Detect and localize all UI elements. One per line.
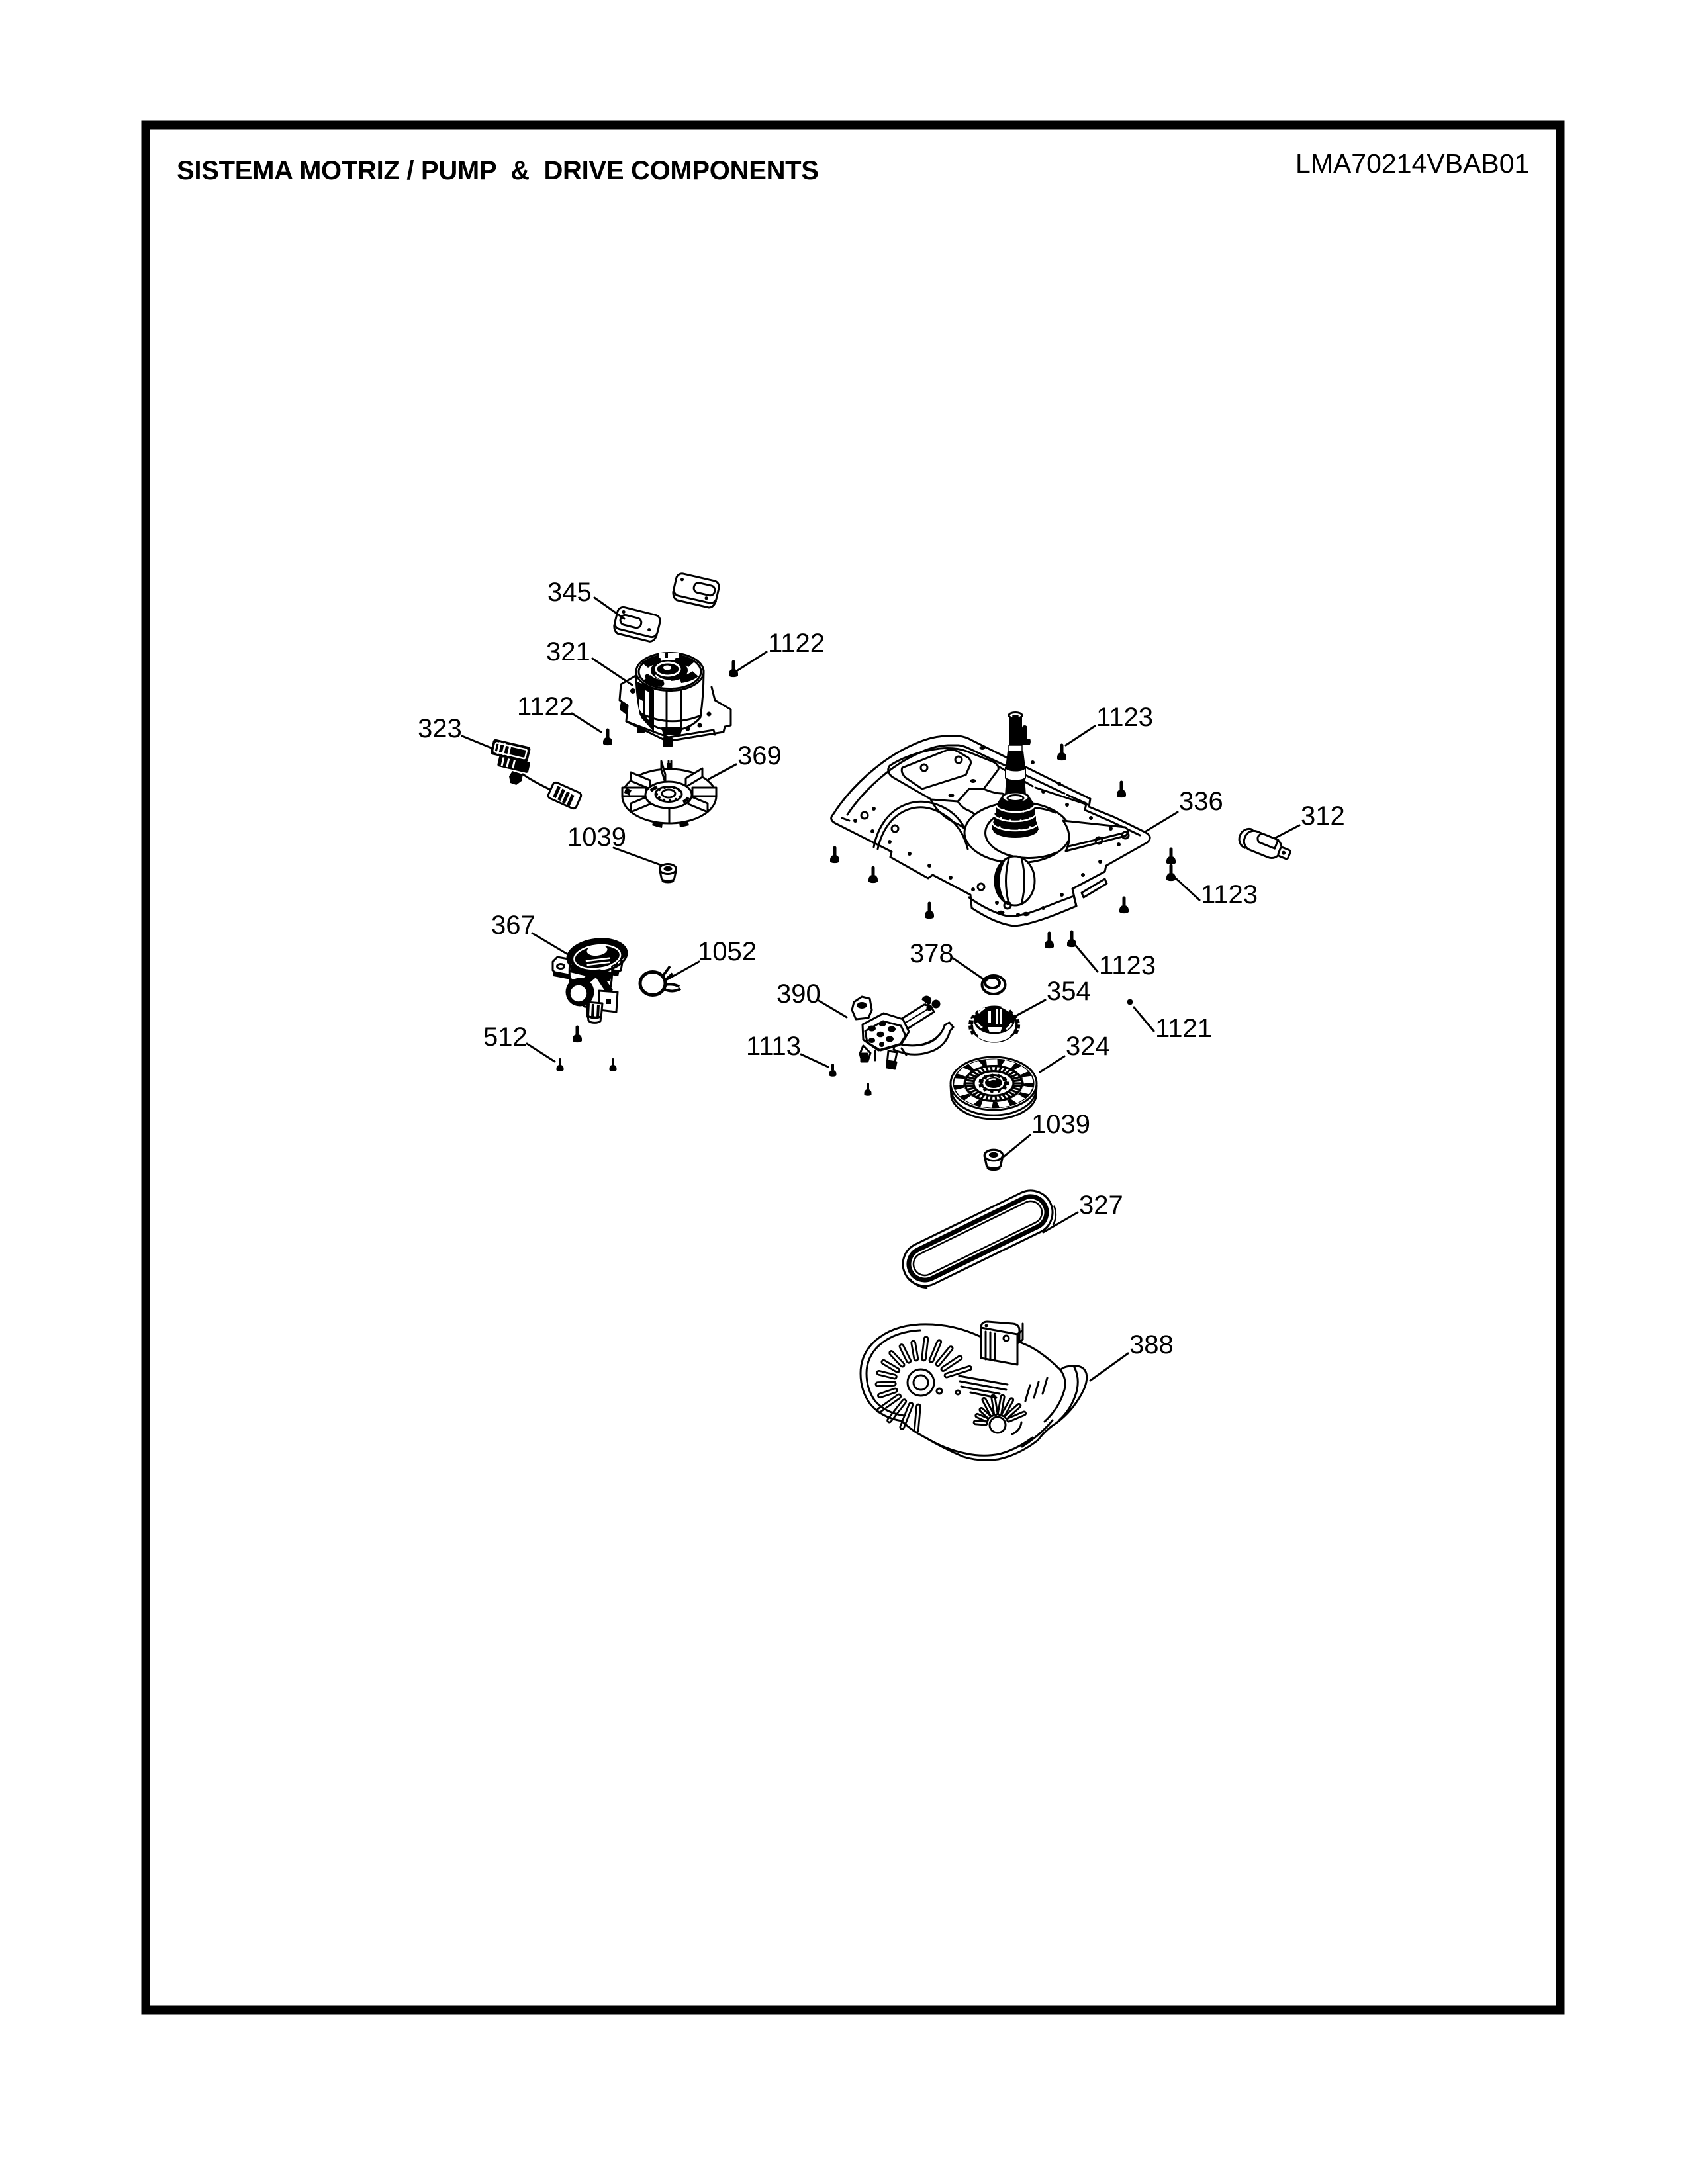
svg-text:1123: 1123 — [1201, 880, 1258, 909]
svg-text:1052: 1052 — [698, 937, 757, 966]
svg-text:1123: 1123 — [1096, 703, 1153, 732]
svg-text:369: 369 — [737, 741, 782, 770]
svg-text:345: 345 — [547, 578, 592, 607]
svg-text:1039: 1039 — [1031, 1110, 1090, 1139]
svg-text:323: 323 — [418, 714, 462, 743]
svg-text:1121: 1121 — [1155, 1014, 1212, 1043]
svg-text:LMA70214VBAB01: LMA70214VBAB01 — [1295, 148, 1529, 179]
svg-text:324: 324 — [1066, 1032, 1110, 1061]
svg-text:512: 512 — [483, 1023, 528, 1052]
svg-text:1123: 1123 — [1099, 951, 1156, 980]
svg-text:390: 390 — [776, 979, 821, 1009]
svg-text:1039: 1039 — [567, 823, 626, 852]
svg-text:1122: 1122 — [768, 629, 825, 658]
svg-text:312: 312 — [1301, 801, 1345, 831]
svg-text:1113: 1113 — [746, 1032, 801, 1061]
svg-text:SISTEMA MOTRIZ / PUMP & DRIV: SISTEMA MOTRIZ / PUMP & DRIVE COMPONENTS — [177, 156, 819, 185]
svg-text:321: 321 — [546, 637, 590, 666]
svg-text:378: 378 — [910, 939, 954, 968]
svg-text:367: 367 — [491, 911, 536, 940]
svg-text:336: 336 — [1179, 787, 1223, 816]
svg-text:327: 327 — [1079, 1191, 1123, 1220]
svg-text:1122: 1122 — [517, 692, 574, 721]
svg-text:354: 354 — [1047, 977, 1091, 1006]
svg-text:388: 388 — [1129, 1330, 1174, 1359]
